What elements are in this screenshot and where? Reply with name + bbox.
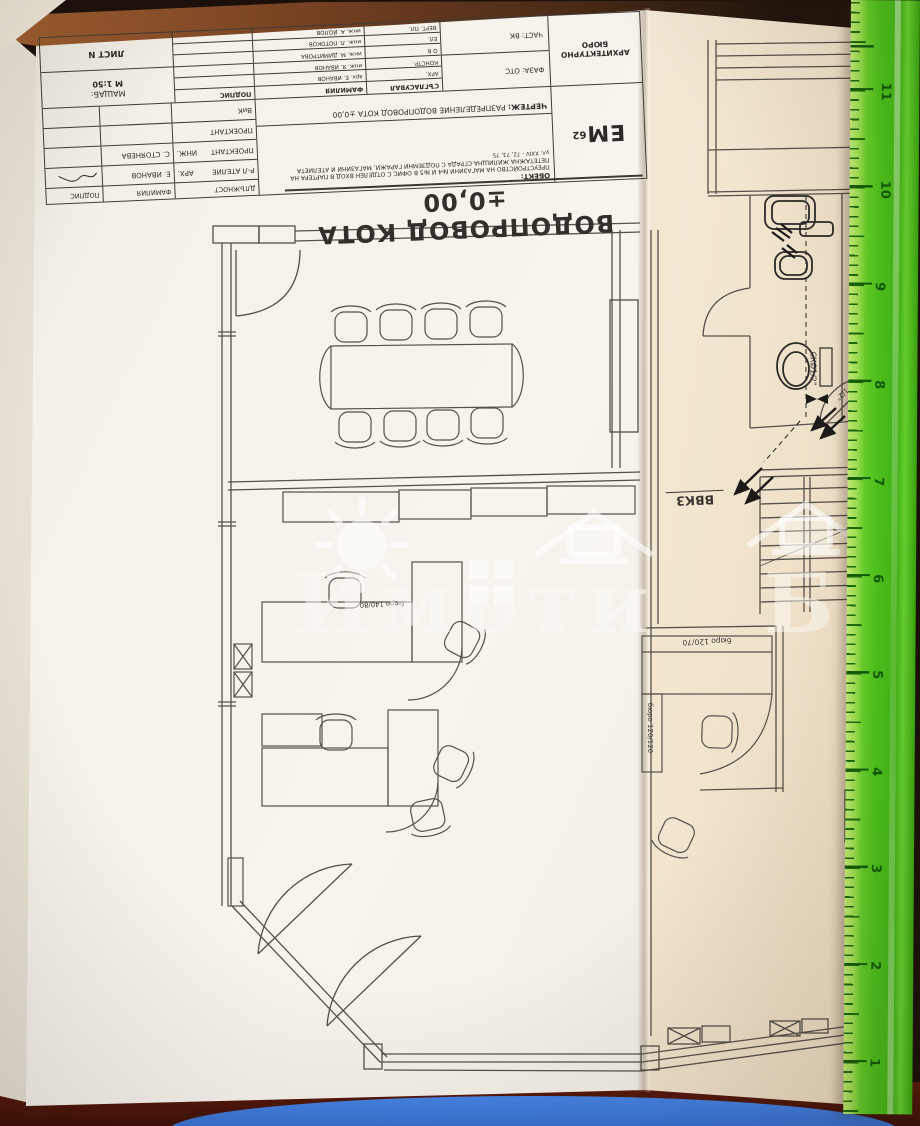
ruler-number: 11 xyxy=(878,83,893,101)
conference-room-furniture xyxy=(320,301,524,448)
bureau-name: АРХИТЕКТУРНО БЮРО xyxy=(547,12,642,86)
scale-sheet-cells: МАЩАБ: М 1:50 ЛИСТ N xyxy=(40,32,175,108)
signature-scribble xyxy=(45,167,102,188)
pipe-size-label: СКØ1/2" xyxy=(809,337,818,401)
photo-of-floor-plan: ВОДОПРОВОД КОТА ±0,00 ВВК3 бюро 120/70 б… xyxy=(0,0,920,1126)
plumbing-fixtures xyxy=(765,196,833,389)
agreed-table: СЪГЛАСУВАЛ ФАМИЛИЯ ПОДПИС АРХ. арх. Е. И… xyxy=(172,21,443,103)
ruler-number: 5 xyxy=(869,670,884,679)
ruler-number: 4 xyxy=(869,767,884,776)
riser-label-vvk3: ВВК3 xyxy=(666,490,725,509)
ruler-number: 8 xyxy=(871,380,886,389)
ruler-number: 2 xyxy=(867,961,882,970)
ruler-number: 7 xyxy=(871,477,886,486)
green-ruler: 11 10 9 8 7 6 5 4 3 2 1 xyxy=(843,0,920,1114)
phase-part-cells: ФАЗА: ОТС ЧАСТ: ВК xyxy=(439,16,550,91)
ruler-number: 1 xyxy=(867,1058,882,1067)
ruler-number: 9 xyxy=(872,282,887,291)
ruler-number: 3 xyxy=(868,864,883,873)
desk-label-120-120: бюро 120/120 xyxy=(646,690,654,766)
staff-table: ДЛЪЖНОСТ ФАМИЛИЯ ПОДПИС Р-Л АТЕЛИЕАРХ. Е… xyxy=(43,100,259,204)
bureau-logo: ЕМ 62 xyxy=(550,83,646,182)
ruler-number: 10 xyxy=(877,181,892,199)
office-furniture xyxy=(228,486,772,906)
object-description: ОБЕКТ: ПРЕУСТРОЙСТВО НА МАГАЗИНИ №4 И №5… xyxy=(257,113,555,195)
ruler-gloss xyxy=(887,0,901,1114)
ruler-number: 6 xyxy=(870,574,885,583)
title-block: ЕМ 62 ОБЕКТ: ПРЕУСТРОЙСТВО НА МАГАЗИНИ №… xyxy=(39,11,648,205)
